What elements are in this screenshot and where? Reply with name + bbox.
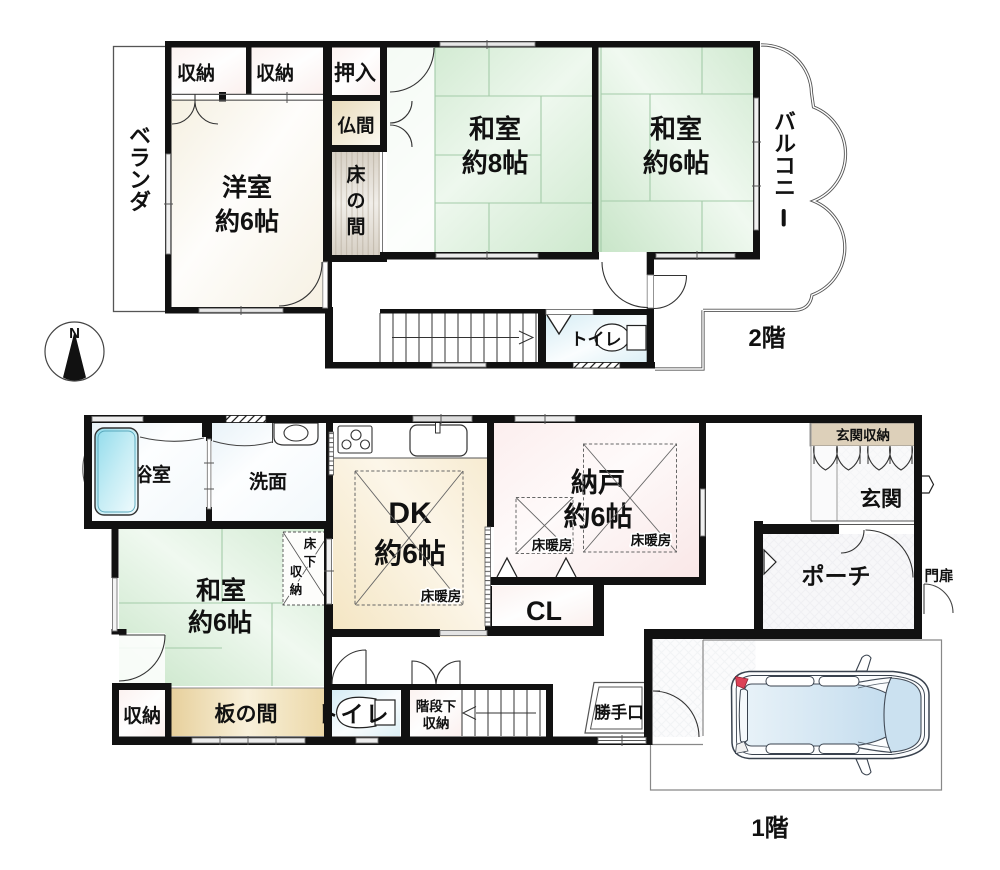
svg-text:門扉: 門扉	[925, 567, 954, 585]
svg-text:1階: 1階	[751, 815, 788, 842]
svg-text:約6帖: 約6帖	[215, 207, 279, 236]
svg-text:勝手口: 勝手口	[594, 702, 644, 722]
svg-text:板の間: 板の間	[215, 703, 278, 726]
svg-text:の: の	[346, 191, 365, 212]
svg-text:洗面: 洗面	[249, 470, 287, 493]
svg-text:洋室: 洋室	[222, 173, 272, 202]
svg-text:階段下: 階段下	[416, 698, 457, 714]
svg-text:押入: 押入	[334, 61, 376, 85]
svg-text:収納: 収納	[123, 704, 161, 727]
svg-text:約6帖: 約6帖	[188, 608, 252, 637]
svg-text:間: 間	[346, 216, 365, 238]
svg-text:床: 床	[304, 536, 317, 551]
svg-text:床暖房: 床暖房	[631, 532, 672, 548]
svg-text:仏間: 仏間	[337, 115, 374, 136]
svg-text:トイレ: トイレ	[316, 701, 391, 727]
svg-text:玄関: 玄関	[860, 487, 902, 511]
svg-text:CL: CL	[526, 596, 562, 626]
svg-text:和室: 和室	[469, 114, 521, 144]
svg-text:収納: 収納	[256, 62, 294, 85]
svg-text:ベランダ: ベランダ	[126, 124, 151, 212]
svg-text:和室: 和室	[196, 576, 246, 605]
svg-text:玄関収納: 玄関収納	[836, 427, 890, 443]
svg-text:収納: 収納	[177, 62, 215, 85]
svg-text:ポーチ: ポーチ	[802, 563, 871, 589]
svg-text:床: 床	[346, 163, 365, 186]
svg-text:下: 下	[304, 555, 317, 569]
svg-text:約6帖: 約6帖	[563, 501, 632, 532]
svg-text:約6帖: 約6帖	[374, 537, 446, 569]
svg-text:DK: DK	[388, 497, 432, 530]
svg-text:床暖房: 床暖房	[532, 537, 573, 553]
svg-text:収: 収	[290, 564, 303, 579]
svg-text:床暖房: 床暖房	[421, 588, 462, 604]
svg-text:約6帖: 約6帖	[643, 148, 709, 178]
svg-text:2階: 2階	[748, 325, 785, 352]
svg-text:収納: 収納	[423, 715, 450, 731]
svg-text:約8帖: 約8帖	[462, 148, 528, 178]
svg-text:N: N	[69, 325, 80, 342]
svg-text:トイレ: トイレ	[571, 330, 622, 349]
svg-text:納: 納	[290, 582, 303, 597]
svg-text:和室: 和室	[650, 114, 702, 144]
svg-text:バルコニ: バルコニ	[771, 110, 796, 198]
